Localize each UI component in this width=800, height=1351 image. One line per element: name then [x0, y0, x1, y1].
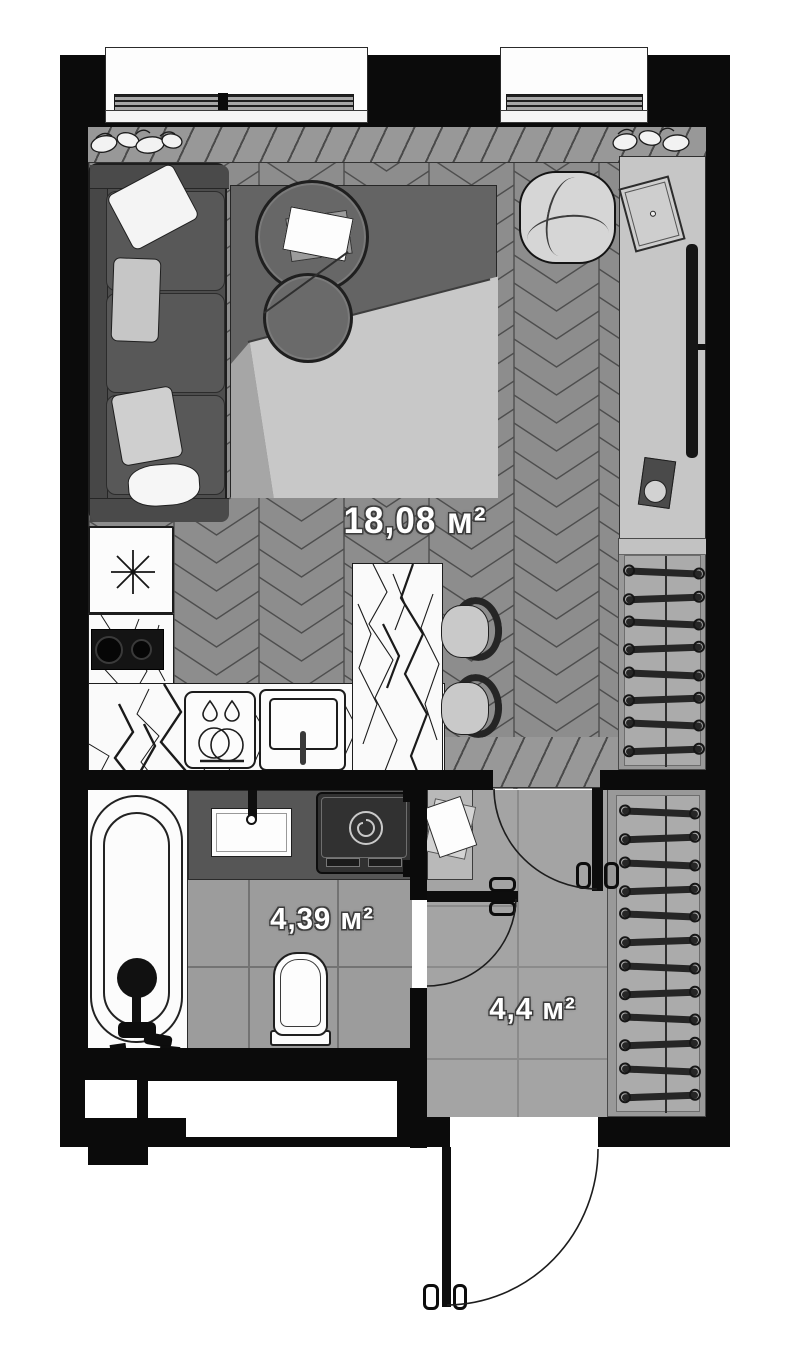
door-swing-arc-icon [494, 789, 597, 889]
floor-plan: 18,08 м² 4,39 м² 4,4 м² [0, 0, 800, 1351]
plan-overlay [0, 0, 800, 1351]
door-swing-arc-icon [427, 899, 516, 986]
area-label-bathroom: 4,39 м² [227, 901, 417, 937]
plant-icon [612, 128, 690, 152]
door-swing-arc-icon [447, 1149, 598, 1305]
area-label-living: 18,08 м² [301, 500, 529, 542]
area-label-hallway: 4,4 м² [449, 991, 615, 1027]
plant-icon [90, 130, 183, 155]
